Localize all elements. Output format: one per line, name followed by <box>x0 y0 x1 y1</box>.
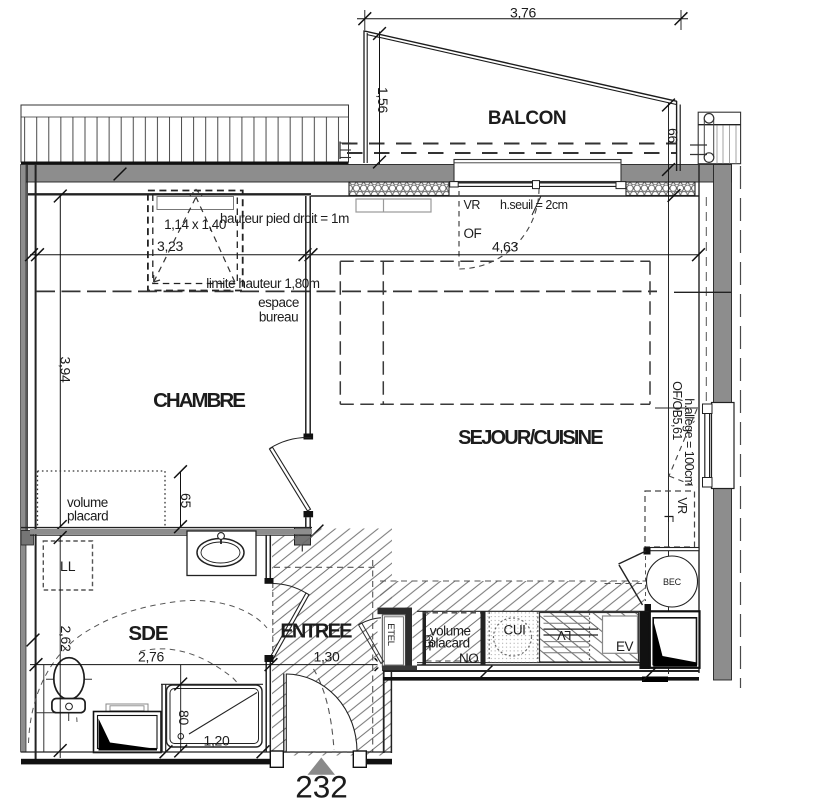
svg-text:SEJOUR/CUISINE: SEJOUR/CUISINE <box>458 427 603 449</box>
svg-text:3,23: 3,23 <box>157 238 184 254</box>
svg-text:F: F <box>662 515 676 523</box>
svg-text:1,30: 1,30 <box>313 649 340 665</box>
svg-text:bureau: bureau <box>259 310 298 325</box>
svg-text:232: 232 <box>295 769 348 800</box>
svg-text:80: 80 <box>176 710 192 725</box>
svg-text:4,63: 4,63 <box>492 239 519 255</box>
svg-text:h.allège = 100cm: h.allège = 100cm <box>682 398 696 486</box>
svg-text:3,94: 3,94 <box>57 356 73 383</box>
svg-text:limite hauteur 1,80m: limite hauteur 1,80m <box>206 276 320 291</box>
svg-text:OF/OB5,61: OF/OB5,61 <box>670 381 684 440</box>
svg-text:1,20: 1,20 <box>203 733 230 749</box>
svg-text:1,14 x 1,40: 1,14 x 1,40 <box>164 217 226 232</box>
svg-text:h.seuil = 2cm: h.seuil = 2cm <box>500 198 568 212</box>
svg-text:VR: VR <box>464 198 481 212</box>
svg-text:2,62: 2,62 <box>58 625 74 652</box>
svg-text:BALCON: BALCON <box>488 108 566 129</box>
svg-text:LV: LV <box>557 628 572 643</box>
svg-text:espace: espace <box>258 295 299 310</box>
svg-text:CHAMBRE: CHAMBRE <box>153 389 245 412</box>
svg-text:CUI: CUI <box>504 623 526 638</box>
svg-text:SDE: SDE <box>128 622 167 645</box>
svg-text:66: 66 <box>665 128 681 143</box>
svg-text:ENTREE: ENTREE <box>280 621 352 643</box>
svg-text:VR: VR <box>675 497 689 514</box>
svg-text:EV: EV <box>616 639 634 654</box>
svg-text:LL: LL <box>60 558 76 574</box>
svg-text:65: 65 <box>178 493 194 508</box>
svg-text:1,56: 1,56 <box>375 87 391 114</box>
svg-text:NO: NO <box>459 651 478 666</box>
svg-text:placard: placard <box>67 509 108 524</box>
svg-text:OF: OF <box>464 226 482 241</box>
svg-text:3,76: 3,76 <box>510 4 537 20</box>
svg-text:65: 65 <box>421 635 435 648</box>
svg-text:hauteur pied droit = 1m: hauteur pied droit = 1m <box>220 211 349 226</box>
svg-text:ETEL: ETEL <box>385 623 396 646</box>
svg-text:BEC: BEC <box>663 577 682 587</box>
svg-text:2,76: 2,76 <box>138 649 165 665</box>
